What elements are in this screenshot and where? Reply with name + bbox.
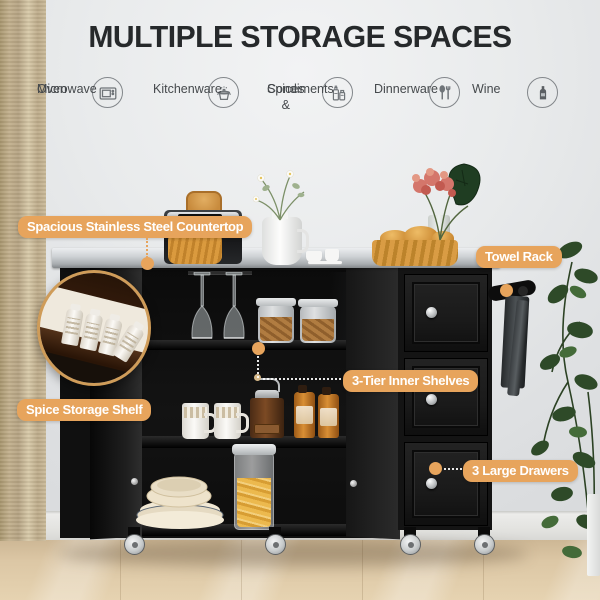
drawer-knob xyxy=(426,394,437,405)
drawer-bottom xyxy=(404,442,488,526)
callout-countertop: Spacious Stainless Steel Countertop xyxy=(18,216,252,238)
page-title: MULTIPLE STORAGE SPACES xyxy=(9,19,591,55)
wine-icon xyxy=(527,77,558,108)
drawer-knob xyxy=(426,307,437,318)
pasta-jar-contents xyxy=(237,478,271,527)
mug xyxy=(214,403,241,439)
open-cabinet-door-right xyxy=(346,265,400,540)
callout-shelves-connector-h xyxy=(263,378,341,380)
white-pitcher xyxy=(262,217,302,265)
callout-towel-rack-dot xyxy=(500,284,513,297)
callout-shelves: 3-Tier Inner Shelves xyxy=(343,370,478,392)
plant-pot xyxy=(587,494,600,576)
bread-basket xyxy=(372,240,458,266)
callout-shelves-connector-v xyxy=(257,356,259,378)
snack-jar xyxy=(300,306,336,343)
plates-and-bowls xyxy=(134,474,226,532)
berry-basket xyxy=(168,236,222,264)
mug xyxy=(182,403,209,439)
door-handle xyxy=(350,480,357,487)
callout-countertop-dot xyxy=(141,257,154,270)
callout-drawers-dot xyxy=(429,462,442,475)
sauce-bottle xyxy=(294,392,315,438)
snack-jar xyxy=(258,305,294,343)
callout-shelves-dot xyxy=(252,342,265,355)
caster-wheel xyxy=(124,534,145,555)
sauce-bottle xyxy=(318,394,339,438)
callout-spice-shelf: Spice Storage Shelf xyxy=(17,399,151,421)
flower-sprigs xyxy=(246,164,318,222)
white-cups xyxy=(306,247,346,265)
towel-rack-end-cap xyxy=(518,286,528,296)
drawer-knob xyxy=(426,478,437,489)
spice-shelf-magnifier xyxy=(37,270,151,386)
flower-arrangement xyxy=(392,160,492,242)
caster-wheel xyxy=(474,534,495,555)
door-handle xyxy=(131,478,138,485)
callout-towel-rack: Towel Rack xyxy=(476,246,562,268)
coffee-grinder-drawer xyxy=(254,424,280,434)
callout-drawers-connector xyxy=(444,468,462,470)
hanging-wine-glasses xyxy=(186,272,254,348)
pasta-jar-lid xyxy=(232,444,276,455)
caster-wheel xyxy=(400,534,421,555)
callout-drawers: 3 Large Drawers xyxy=(463,460,578,482)
callout-countertop-connector xyxy=(146,238,148,258)
product-infographic: MULTIPLE STORAGE SPACES MicrowaveOven Ki… xyxy=(0,0,600,600)
caster-wheel xyxy=(265,534,286,555)
drawer-top xyxy=(404,274,488,352)
